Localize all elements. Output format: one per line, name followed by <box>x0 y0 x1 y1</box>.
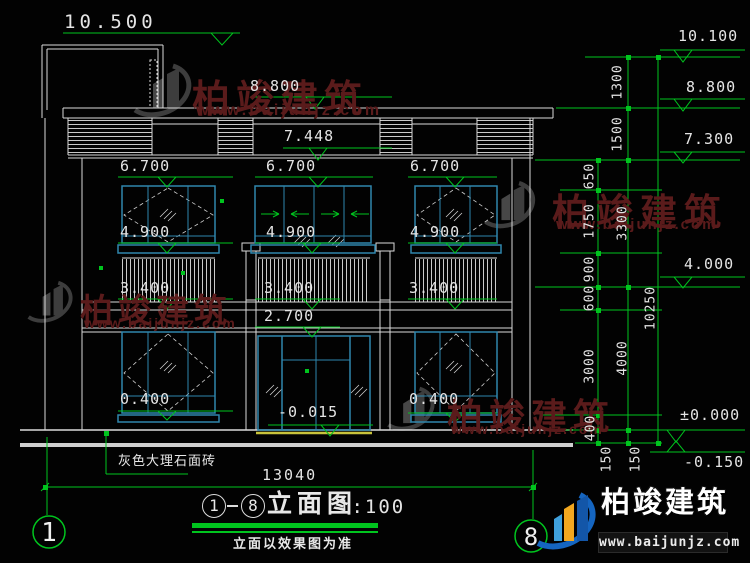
elevation-label-0400-left: 0.400 <box>120 392 170 407</box>
dim-inner-600: 600 <box>584 285 597 311</box>
elevation-label-4900-centre: 4.900 <box>266 225 316 240</box>
elevation-label-right-4000: 4.000 <box>684 257 734 272</box>
dim-inner-3000: 3000 <box>584 348 597 383</box>
elevation-drawing-canvas: 柏竣建筑 www.baijunjz.com 柏竣建筑 www.baijunjz.… <box>0 0 750 563</box>
elevation-label-6700-left: 6.700 <box>120 159 170 174</box>
dim-middle-1500: 1500 <box>612 116 625 151</box>
company-logo-brand: 柏竣建筑 <box>601 489 729 518</box>
drawing-note: 立面以效果图为准 <box>233 537 353 550</box>
title-dash <box>227 505 238 507</box>
elevation-label-fascia: 7.448 <box>284 129 334 144</box>
elevation-label-4900-right: 4.900 <box>410 225 460 240</box>
elevation-label-right-minus150: -0.150 <box>684 455 744 470</box>
title-axis-to-bubble: 8 <box>241 494 265 518</box>
elevation-label-right-8800: 8.800 <box>686 80 736 95</box>
dim-middle-3300: 3300 <box>617 205 630 240</box>
elevation-label-entrance: -0.015 <box>278 405 338 420</box>
dim-overall-height: 10250 <box>645 286 658 330</box>
dim-inner-400: 400 <box>585 415 598 441</box>
elevation-label-right-zero: ±0.000 <box>680 408 740 423</box>
elevation-label-3400-left: 3.400 <box>120 281 170 296</box>
dim-overall-width: 13040 <box>262 468 317 483</box>
dim-middle-150: 150 <box>630 446 643 472</box>
dim-inner-1750: 1750 <box>584 203 597 238</box>
watermark-url: www.baijunjz.com <box>451 421 604 437</box>
elevation-label-6700-centre: 6.700 <box>266 159 316 174</box>
watermark-url: www.baijunjz.com <box>556 216 717 233</box>
elevation-label-right-10100: 10.100 <box>678 29 738 44</box>
axis-bubble-left: 1 <box>41 518 57 548</box>
dim-middle-4000: 4000 <box>617 340 630 375</box>
dim-inner-150: 150 <box>601 446 614 472</box>
elevation-label-4900-left: 4.900 <box>120 225 170 240</box>
elevation-label-roof: 8.800 <box>250 79 300 94</box>
elevation-label-parapet: 10.500 <box>64 13 157 32</box>
elevation-label-door-head: 2.700 <box>264 309 314 324</box>
watermark-url: www.baijunjz.com <box>84 315 237 331</box>
watermark-url: www.baijunjz.com <box>196 102 382 120</box>
company-logo-urlbar: www.baijunjz.com <box>598 532 728 553</box>
elevation-label-3400-right: 3.400 <box>409 281 459 296</box>
elevation-label-6700-right: 6.700 <box>410 159 460 174</box>
company-logo-url: www.baijunjz.com <box>599 535 727 550</box>
dim-inner-900: 900 <box>584 256 597 282</box>
elevation-label-right-7300: 7.300 <box>684 132 734 147</box>
axis-bubble-right: 8 <box>524 523 538 551</box>
dim-inner-650: 650 <box>584 163 597 189</box>
title-axis-from-bubble: 1 <box>202 494 226 518</box>
drawing-scale: 1:100 <box>338 498 405 517</box>
dim-middle-1300: 1300 <box>612 64 625 99</box>
drawing-linework <box>0 0 750 563</box>
elevation-label-0400-right: 0.400 <box>409 392 459 407</box>
material-note: 灰色大理石面砖 <box>118 454 216 467</box>
elevation-label-3400-centre: 3.400 <box>264 281 314 296</box>
